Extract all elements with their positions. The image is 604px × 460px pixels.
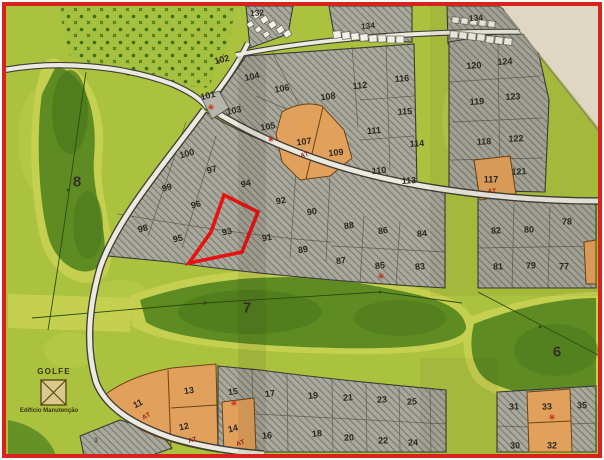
golf-lot-map-photo: GOLFE Edifício Manutenção 13213413410210…: [0, 0, 604, 460]
map-drawing: [0, 0, 604, 460]
golf-maintenance-icon: [41, 380, 66, 405]
